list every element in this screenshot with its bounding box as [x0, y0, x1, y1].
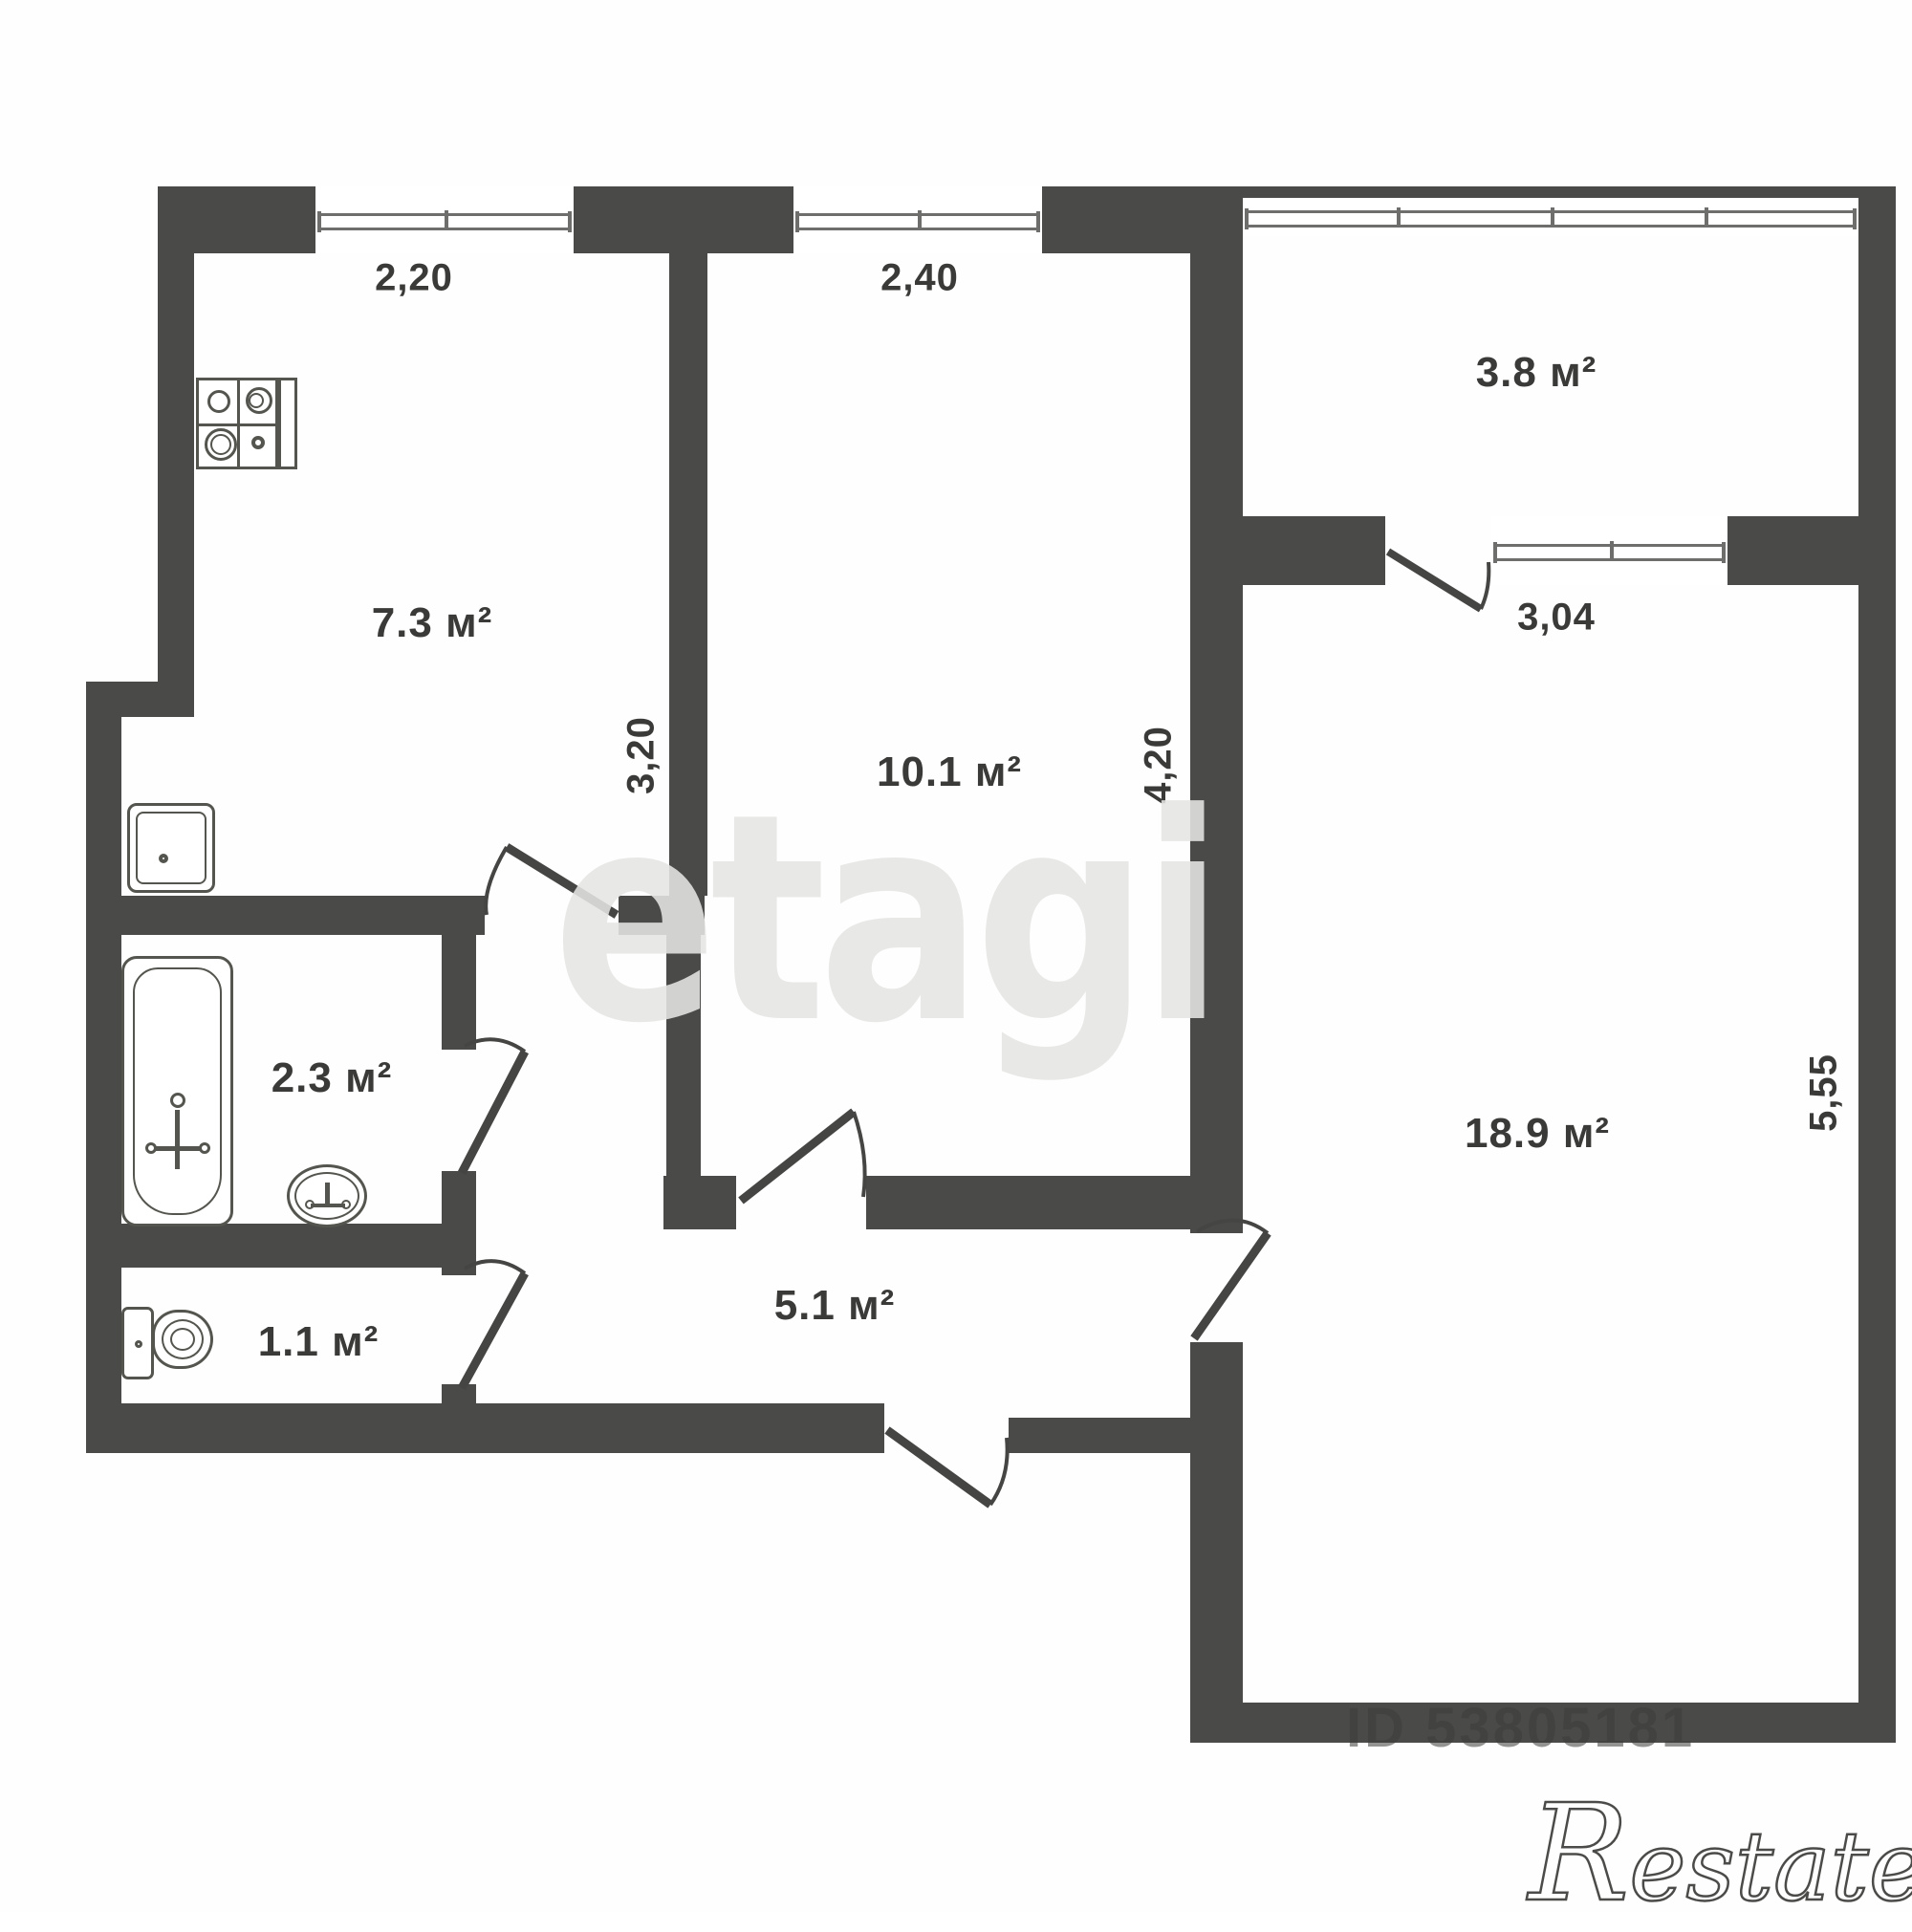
- kitchen-door-arc: [486, 847, 507, 915]
- toilet-door-leaf: [462, 1273, 525, 1388]
- balcony-door-leaf: [1388, 552, 1481, 609]
- room-door-leaf: [741, 1112, 854, 1201]
- room-door-arc: [854, 1112, 865, 1197]
- balcony-door-arc: [1481, 562, 1488, 609]
- toilet-door-arc: [465, 1261, 525, 1273]
- entrance-door-leaf: [887, 1430, 990, 1505]
- entrance-door-arc: [990, 1438, 1008, 1505]
- living-room-door-leaf: [1194, 1233, 1268, 1338]
- restate-logo-watermark: Restate: [1529, 1788, 1912, 1921]
- living-room-door-arc: [1197, 1220, 1268, 1233]
- floor-plan: 7.3 м² 10.1 м² 3.8 м² 2.3 м² 1.1 м² 5.1 …: [0, 0, 1912, 1912]
- bathroom-door-arc: [465, 1039, 525, 1052]
- etagi-watermark: etagi: [553, 776, 1216, 1063]
- bathroom-door-leaf: [462, 1052, 525, 1173]
- listing-id-watermark: ID 53805181: [1346, 1696, 1695, 1760]
